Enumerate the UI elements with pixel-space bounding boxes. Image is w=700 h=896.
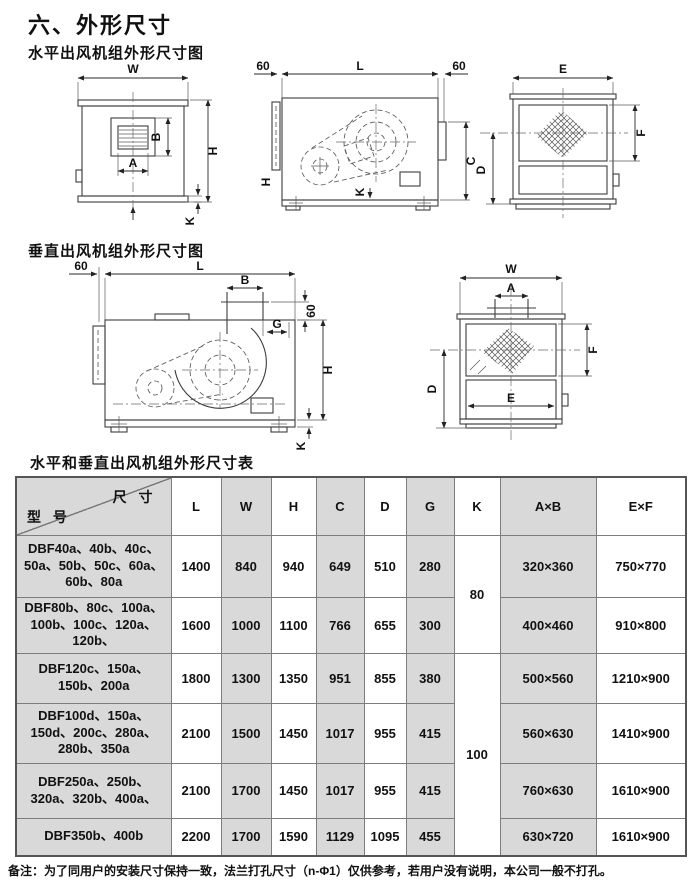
value-l: 1800 (171, 653, 221, 703)
value-l: 1400 (171, 535, 221, 597)
dimension-table-title: 水平和垂直出风机组外形尺寸表 (30, 452, 254, 473)
dim-label-f: F (586, 346, 600, 353)
dim-label-a: A (129, 156, 138, 170)
col-header-g: G (406, 477, 454, 535)
corner-label-model: 型 号 (27, 507, 71, 527)
fan-impeller (182, 332, 258, 408)
dimension-l: L (105, 259, 295, 320)
value-d: 655 (364, 597, 406, 653)
col-header-k: K (454, 477, 500, 535)
value-h: 1450 (271, 703, 316, 763)
value-c: 951 (316, 653, 364, 703)
value-g: 300 (406, 597, 454, 653)
value-c: 1017 (316, 703, 364, 763)
value-l: 2100 (171, 703, 221, 763)
dim-label-d: D (474, 165, 488, 174)
vertical-rear-view-diagram: W A F D E (420, 256, 700, 448)
table-row: DBF120c、150a、150b、200a 1800 1300 1350 95… (16, 653, 686, 703)
model-cell: DBF250a、250b、320a、320b、400a、 (16, 763, 171, 818)
value-c: 1129 (316, 818, 364, 856)
value-k-group2: 100 (454, 653, 500, 856)
dim-label-h: H (259, 178, 273, 187)
value-k-group1: 80 (454, 535, 500, 653)
value-w: 1500 (221, 703, 271, 763)
model-cell: DBF100d、150a、150d、200c、280a、280b、350a (16, 703, 171, 763)
col-header-w: W (221, 477, 271, 535)
hatch-stray-line (478, 366, 486, 374)
value-axb: 760×630 (500, 763, 596, 818)
dim-label-k: K (183, 216, 197, 225)
value-w: 1700 (221, 818, 271, 856)
dim-label-b: B (149, 132, 163, 141)
value-exf: 1610×900 (596, 763, 686, 818)
value-w: 1300 (221, 653, 271, 703)
corner-label-dimension: 尺 寸 (113, 487, 157, 507)
page-title: 六、外形尺寸 (28, 8, 172, 40)
dim-label-60-left: 60 (256, 59, 270, 73)
value-d: 510 (364, 535, 406, 597)
value-h: 1450 (271, 763, 316, 818)
dim-label-k: K (294, 441, 308, 450)
volute-scroll (175, 320, 266, 408)
value-c: 649 (316, 535, 364, 597)
value-d: 855 (364, 653, 406, 703)
dim-label-h: H (206, 147, 220, 156)
value-g: 280 (406, 535, 454, 597)
model-cell: DBF80b、80c、100a、100b、100c、120a、120b、 (16, 597, 171, 653)
corner-header-cell: 尺 寸 型 号 (16, 477, 171, 535)
dim-label-g: G (272, 317, 281, 331)
table-row: DBF250a、250b、320a、320b、400a、 2100 1700 1… (16, 763, 686, 818)
dimension-a: A (495, 281, 528, 296)
dimension-60-left: 60 (254, 59, 277, 74)
value-axb: 500×560 (500, 653, 596, 703)
table-row: DBF350b、400b 2200 1700 1590 1129 1095 45… (16, 818, 686, 856)
dim-label-d: D (425, 384, 439, 393)
foot-bolt-marks (289, 196, 431, 210)
table-row: DBF40a、40b、40c、50a、50b、50c、60a、60b、80a 1… (16, 535, 686, 597)
col-header-h: H (271, 477, 316, 535)
fan-impeller (336, 104, 416, 182)
dim-label-w: W (505, 262, 517, 276)
value-d: 1095 (364, 818, 406, 856)
value-h: 1350 (271, 653, 316, 703)
outlet-duct (221, 292, 269, 320)
value-axb: 630×720 (500, 818, 596, 856)
dimension-d: D (425, 350, 468, 428)
col-header-c: C (316, 477, 364, 535)
dim-label-l: L (356, 59, 363, 73)
dimension-table: 尺 寸 型 号 L W H C D G K A×B E×F DBF40a、40b… (15, 476, 687, 857)
manual-page: { "page": { "title": "六、外形尺寸", "horizont… (0, 0, 700, 896)
value-exf: 1410×900 (596, 703, 686, 763)
outlet-duct (487, 299, 536, 318)
horizontal-side-view-diagram: 60 L 60 C (248, 58, 483, 230)
value-l: 2100 (171, 763, 221, 818)
table-row: DBF80b、80c、100a、100b、100c、120a、120b、 160… (16, 597, 686, 653)
value-h: 1590 (271, 818, 316, 856)
header-row: 尺 寸 型 号 L W H C D G K A×B E×F (16, 477, 686, 535)
dim-label-60-right: 60 (452, 59, 466, 73)
dim-label-60-left: 60 (74, 259, 88, 273)
value-l: 2200 (171, 818, 221, 856)
value-exf: 1210×900 (596, 653, 686, 703)
dimension-k: K (353, 187, 370, 198)
dimension-k: K (294, 408, 313, 450)
inlet-mesh-hatch (482, 328, 534, 374)
value-axb: 400×460 (500, 597, 596, 653)
dimension-60-right: 60 (445, 59, 468, 74)
dim-label-f: F (634, 129, 648, 136)
dim-label-k: K (353, 187, 367, 196)
dim-label-w: W (127, 62, 139, 76)
value-w: 1000 (221, 597, 271, 653)
value-w: 1700 (221, 763, 271, 818)
value-exf: 1610×900 (596, 818, 686, 856)
value-g: 415 (406, 703, 454, 763)
dim-label-e: E (507, 391, 515, 405)
horizontal-front-view-diagram: W B A H K (48, 58, 248, 230)
model-cell: DBF40a、40b、40c、50a、50b、50c、60a、60b、80a (16, 535, 171, 597)
dimension-k: K (133, 184, 202, 225)
table-row: DBF100d、150a、150d、200c、280a、280b、350a 21… (16, 703, 686, 763)
dim-label-60-right: 60 (304, 304, 318, 318)
value-g: 455 (406, 818, 454, 856)
col-header-l: L (171, 477, 221, 535)
col-header-d: D (364, 477, 406, 535)
foot-bolt-marks (111, 416, 287, 432)
model-cell: DBF120c、150a、150b、200a (16, 653, 171, 703)
value-h: 1100 (271, 597, 316, 653)
value-h: 940 (271, 535, 316, 597)
horizontal-rear-view-diagram: E F D (468, 58, 693, 230)
hatch-stray-line (470, 360, 480, 370)
dimension-60-left: 60 (69, 259, 99, 322)
value-g: 415 (406, 763, 454, 818)
col-header-exf: E×F (596, 477, 686, 535)
value-exf: 750×770 (596, 535, 686, 597)
dimension-d: D (474, 133, 513, 204)
value-d: 955 (364, 763, 406, 818)
motor-and-belt (301, 116, 388, 185)
value-c: 766 (316, 597, 364, 653)
footnote: 备注：为了同用户的安装尺寸保持一致，法兰打孔尺寸（n-Φ1）仅供参考，若用户没有… (8, 862, 698, 879)
col-header-axb: A×B (500, 477, 596, 535)
dimension-b: B (227, 273, 263, 288)
value-d: 955 (364, 703, 406, 763)
dimension-b: B (149, 118, 172, 156)
value-g: 380 (406, 653, 454, 703)
value-l: 1600 (171, 597, 221, 653)
model-cell: DBF350b、400b (16, 818, 171, 856)
dimension-e: E (468, 391, 554, 406)
value-w: 840 (221, 535, 271, 597)
inlet-mesh-hatch (536, 110, 588, 158)
dim-label-e: E (559, 62, 567, 76)
dimension-h: H (190, 100, 220, 202)
dimension-h: H (297, 320, 335, 420)
cabinet-outline (76, 100, 188, 202)
value-axb: 320×360 (500, 535, 596, 597)
dim-label-h: H (321, 366, 335, 375)
value-exf: 910×800 (596, 597, 686, 653)
vertical-side-view-diagram: 60 L B 60 (55, 258, 385, 450)
dim-label-l: L (196, 259, 203, 273)
value-axb: 560×630 (500, 703, 596, 763)
value-c: 1017 (316, 763, 364, 818)
dim-label-b: B (241, 273, 250, 287)
